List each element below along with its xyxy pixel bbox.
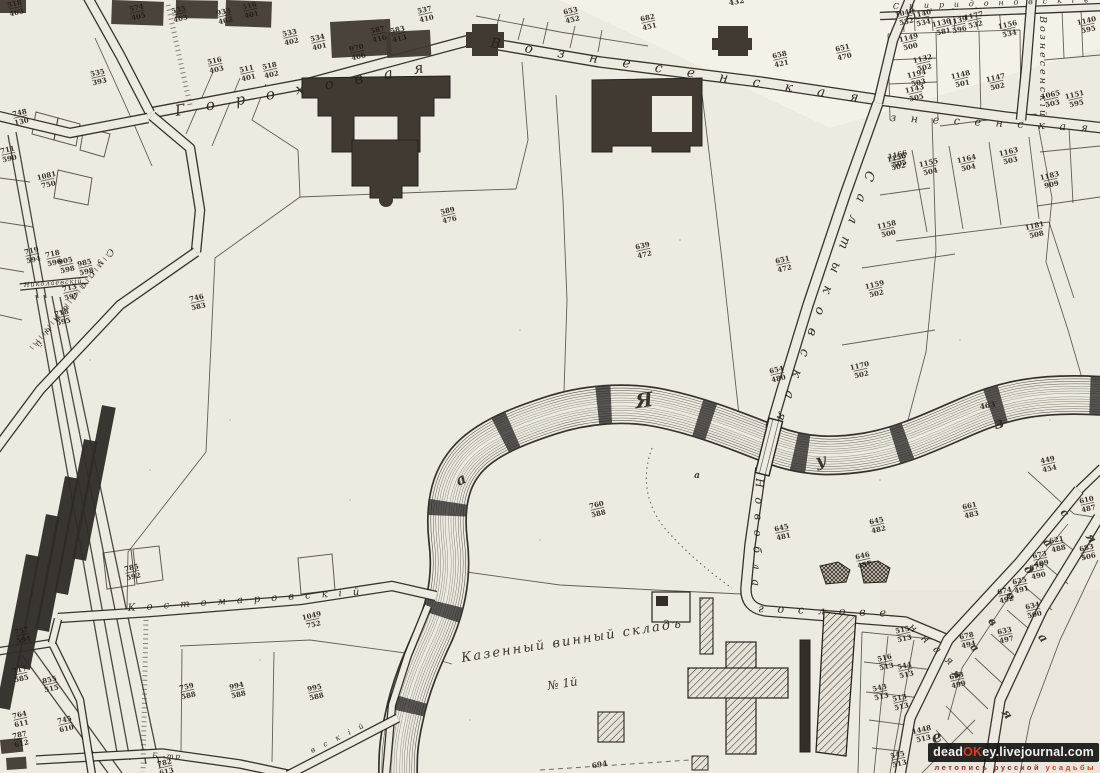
palace-apse: [379, 193, 393, 207]
warehouse-block-detail: [656, 596, 668, 606]
church-building: [712, 26, 752, 56]
watermark-tagline: летопись русской усадьбы: [928, 763, 1099, 772]
speckle: [229, 419, 231, 421]
speckle: [259, 659, 261, 661]
speckle: [349, 499, 351, 501]
warehouse-outbuilding: [598, 712, 624, 742]
courtyard-opening: [652, 96, 692, 132]
speckle: [959, 339, 961, 341]
watermark-tagline-right: усадьбы: [1046, 763, 1096, 772]
speckle: [879, 479, 881, 481]
map-letter: a: [694, 471, 700, 481]
watermark-site: deadOKey.livejournal.com: [928, 743, 1099, 762]
speckle: [419, 189, 421, 191]
warehouse-narrow-bar: [800, 640, 810, 752]
watermark-site-suffix: ey.livejournal.com: [982, 745, 1094, 759]
warehouse-small-block: [692, 756, 708, 770]
watermark-tagline-left: летопись русской: [935, 763, 1042, 772]
warehouse-cross-wing: [688, 668, 788, 698]
speckle: [779, 619, 781, 621]
speckle: [469, 719, 471, 721]
watermark-site-accent: OK: [963, 745, 982, 759]
warehouse-wing: [700, 598, 713, 654]
watermark-site-prefix: dead: [933, 745, 963, 759]
map-page: ГороховаяВознесенскаязнесенскаяВознесенс…: [0, 0, 1100, 773]
speckle: [149, 469, 151, 471]
map-canvas: ГороховаяВознесенскаязнесенскаяВознесенс…: [0, 0, 1100, 773]
speckle: [679, 239, 681, 241]
speckle: [1049, 419, 1051, 421]
speckle: [89, 359, 91, 361]
speckle: [539, 539, 541, 541]
dark-block: [6, 757, 27, 770]
watermark: deadOKey.livejournal.com летопись русско…: [928, 741, 1099, 772]
speckle: [609, 139, 611, 141]
speckle: [519, 329, 521, 331]
